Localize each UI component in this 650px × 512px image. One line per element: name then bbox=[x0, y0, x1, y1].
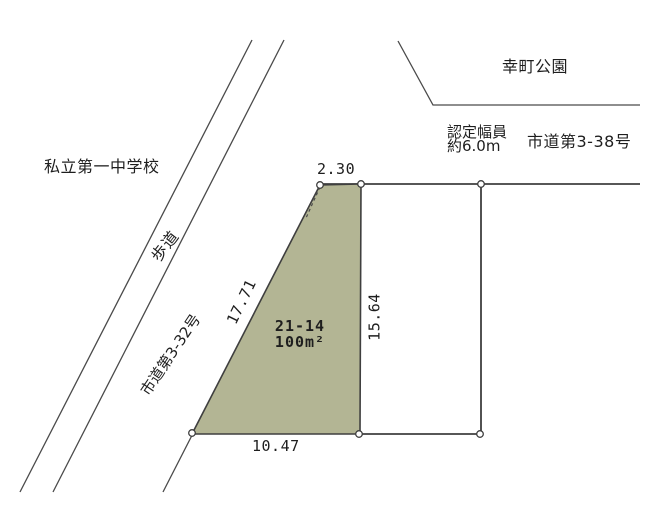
parcel-number: 21-14 bbox=[275, 318, 325, 334]
vertex-marker bbox=[189, 430, 196, 437]
dimension-bottom: 10.47 bbox=[252, 438, 300, 455]
vertex-marker bbox=[358, 181, 365, 188]
vertex-marker bbox=[478, 181, 485, 188]
dimension-right: 15.64 bbox=[367, 293, 384, 341]
dimension-top: 2.30 bbox=[317, 161, 355, 178]
park-label: 幸町公園 bbox=[502, 58, 568, 75]
school-label: 私立第一中学校 bbox=[44, 158, 160, 175]
parcel-label: 21-14 100m² bbox=[275, 318, 325, 350]
vertex-marker bbox=[477, 431, 484, 438]
subject-parcel-polygon bbox=[192, 184, 361, 434]
parcel-area: 100m² bbox=[275, 334, 325, 350]
road-north-name-label: 市道第3-38号 bbox=[527, 133, 631, 150]
road-width-note-line2: 約6.0m bbox=[447, 139, 507, 153]
road-width-note: 認定幅員 約6.0m bbox=[447, 125, 507, 153]
plot-map-drawing bbox=[0, 0, 650, 512]
land-plot-map: 私立第一中学校 幸町公園 認定幅員 約6.0m 市道第3-38号 歩道 市道第3… bbox=[0, 0, 650, 512]
vertex-marker bbox=[317, 182, 324, 189]
vertex-marker bbox=[356, 431, 363, 438]
